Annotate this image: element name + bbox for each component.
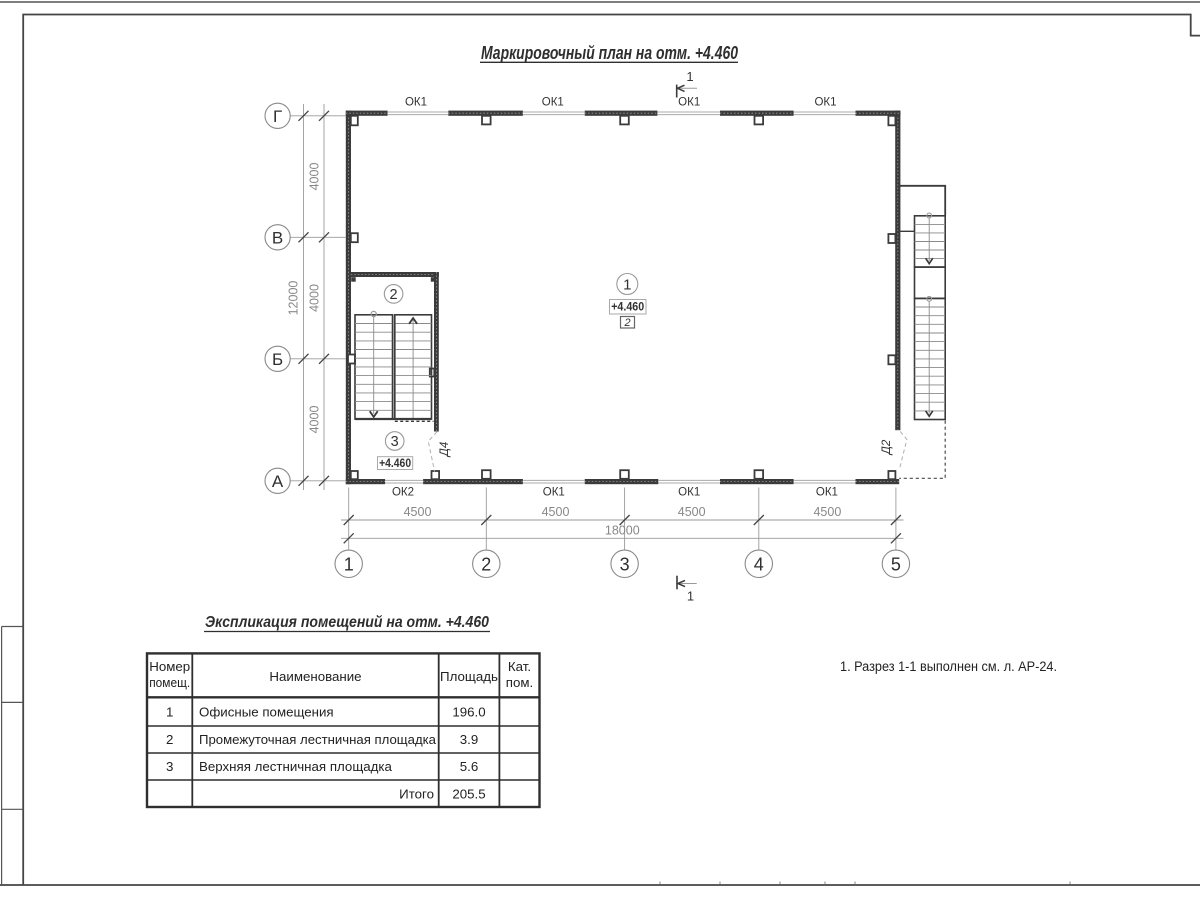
svg-text:2: 2 xyxy=(166,732,173,747)
svg-text:4000: 4000 xyxy=(308,406,322,434)
svg-text:1: 1 xyxy=(166,705,173,720)
svg-text:Наименование: Наименование xyxy=(269,669,361,684)
svg-text:Верхняя лестничная площадка: Верхняя лестничная площадка xyxy=(199,759,393,774)
svg-text:Итого: Итого xyxy=(399,787,434,802)
svg-text:ОК1: ОК1 xyxy=(405,97,427,109)
svg-text:3.9: 3.9 xyxy=(460,732,479,747)
svg-text:1: 1 xyxy=(687,589,694,604)
svg-text:18000: 18000 xyxy=(605,524,640,538)
svg-text:4000: 4000 xyxy=(308,284,322,312)
svg-text:2: 2 xyxy=(623,317,630,329)
svg-text:4: 4 xyxy=(754,554,764,574)
svg-text:Экспликация помещений на отм.: Экспликация помещений на отм. +4.460 xyxy=(205,614,489,631)
svg-text:3: 3 xyxy=(391,434,399,450)
svg-text:3: 3 xyxy=(166,759,173,774)
svg-text:ОК1: ОК1 xyxy=(814,97,836,109)
svg-text:2: 2 xyxy=(390,287,398,303)
svg-text:ОК1: ОК1 xyxy=(816,487,838,499)
svg-text:205.5: 205.5 xyxy=(452,787,485,802)
svg-text:пом.: пом. xyxy=(506,675,533,690)
svg-text:5.6: 5.6 xyxy=(460,759,479,774)
svg-text:4500: 4500 xyxy=(404,505,432,519)
svg-text:2: 2 xyxy=(481,554,491,574)
svg-text:4500: 4500 xyxy=(542,505,570,519)
svg-text:+4.460: +4.460 xyxy=(611,300,644,314)
svg-text:1: 1 xyxy=(623,276,631,293)
svg-text:Б: Б xyxy=(272,350,283,369)
svg-text:1: 1 xyxy=(686,69,693,84)
svg-text:Офисные помещения: Офисные помещения xyxy=(199,705,334,720)
svg-text:Кат.: Кат. xyxy=(508,659,531,674)
svg-text:Д2: Д2 xyxy=(881,439,893,456)
svg-text:ОК2: ОК2 xyxy=(392,487,414,499)
svg-text:1. Разрез 1-1 выполнен см. л.: 1. Разрез 1-1 выполнен см. л. АР-24. xyxy=(840,659,1057,674)
svg-text:ОК1: ОК1 xyxy=(678,487,700,499)
svg-text:ОК1: ОК1 xyxy=(543,487,565,499)
svg-text:4000: 4000 xyxy=(308,163,322,191)
svg-text:+4.460: +4.460 xyxy=(379,456,411,470)
svg-text:Промежуточная лестничная площа: Промежуточная лестничная площадка xyxy=(199,732,437,747)
svg-text:1: 1 xyxy=(344,554,354,574)
svg-text:Г: Г xyxy=(273,107,282,126)
svg-text:В: В xyxy=(272,229,283,248)
svg-text:А: А xyxy=(272,472,284,491)
svg-text:196.0: 196.0 xyxy=(452,705,485,720)
svg-text:12000: 12000 xyxy=(287,281,301,316)
svg-text:Номер: Номер xyxy=(149,659,190,674)
svg-text:ОК1: ОК1 xyxy=(542,97,564,109)
svg-text:Д4: Д4 xyxy=(439,442,451,459)
svg-text:4500: 4500 xyxy=(813,505,841,519)
svg-text:Маркировочный план на отм. +4.: Маркировочный план на отм. +4.460 xyxy=(481,43,738,63)
svg-text:помещ.: помещ. xyxy=(149,675,190,690)
svg-text:3: 3 xyxy=(620,554,630,574)
svg-text:Площадь: Площадь xyxy=(440,669,498,684)
svg-text:ОК1: ОК1 xyxy=(678,97,700,109)
svg-text:5: 5 xyxy=(891,554,901,574)
svg-text:4500: 4500 xyxy=(678,505,706,519)
